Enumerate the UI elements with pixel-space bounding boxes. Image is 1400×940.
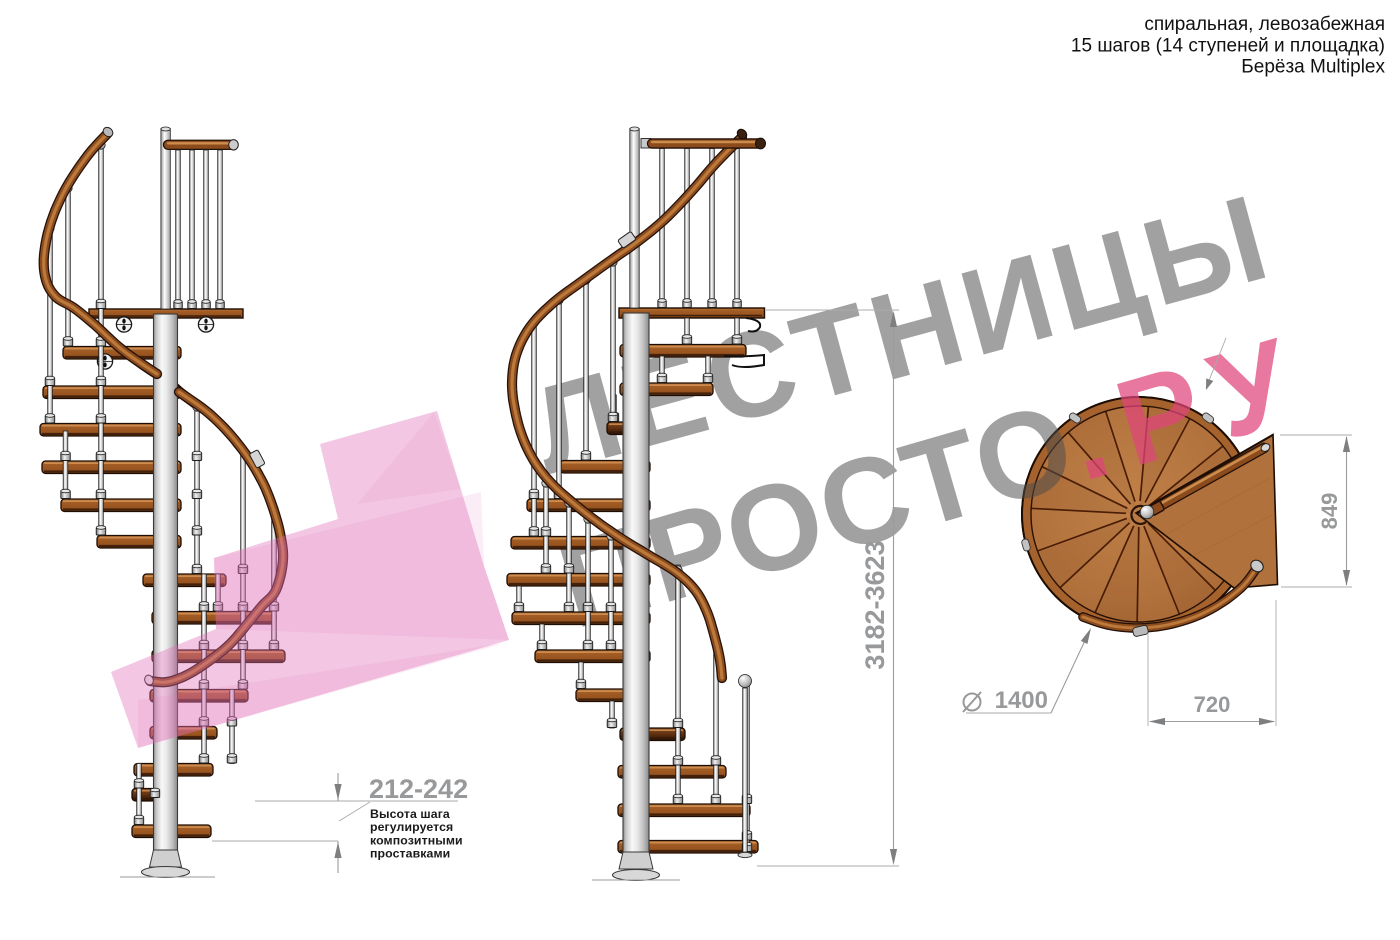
svg-text:Высота шага: Высота шага [370,807,450,821]
svg-text:15 шагов (14 ступеней и площад: 15 шагов (14 ступеней и площадка) [1071,35,1385,56]
svg-text:Берёза Multiplex: Берёза Multiplex [1241,57,1385,78]
svg-text:1400: 1400 [995,687,1048,714]
svg-text:регулируется: регулируется [370,820,453,834]
svg-text:3182-3623: 3182-3623 [860,540,890,669]
svg-text:композитными: композитными [370,833,463,847]
svg-text:спиральная, левозабежная: спиральная, левозабежная [1144,14,1385,35]
svg-text:212-242: 212-242 [369,774,468,804]
svg-text:720: 720 [1194,692,1231,717]
svg-text:проставками: проставками [370,847,450,861]
svg-text:849: 849 [1317,493,1342,530]
